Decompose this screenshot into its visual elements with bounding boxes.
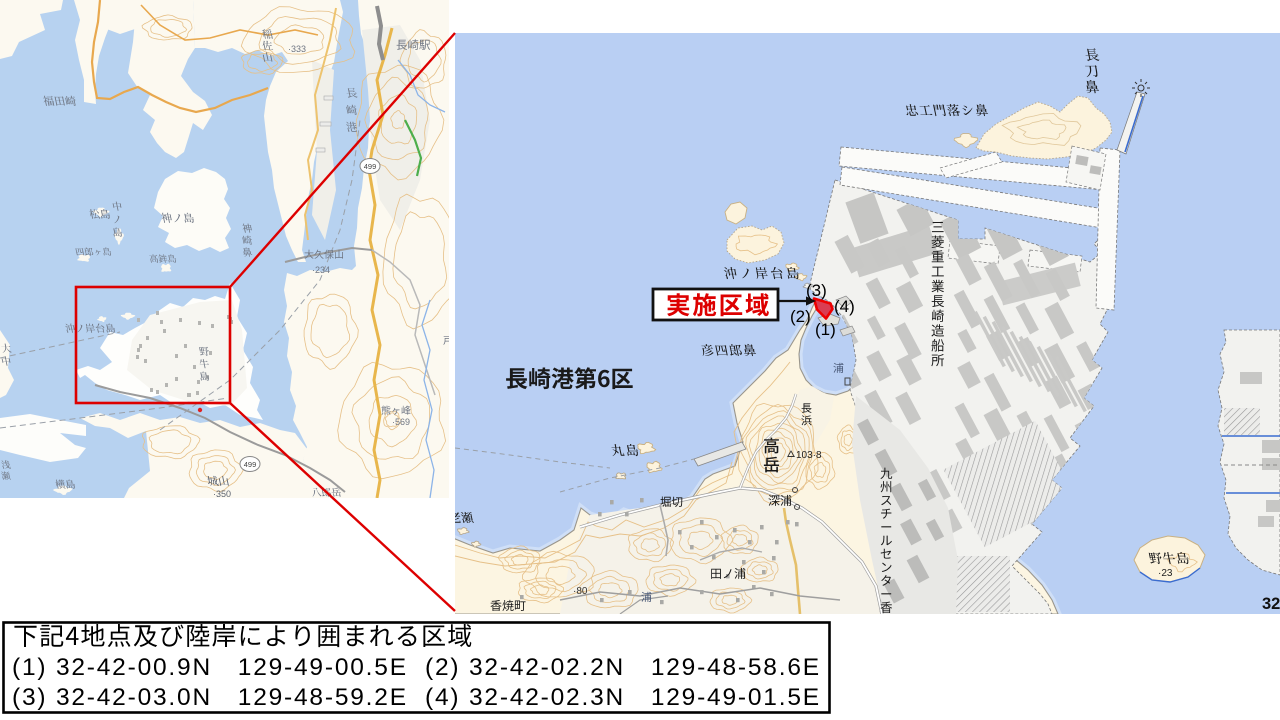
svg-text:·23: ·23: [1158, 568, 1173, 579]
svg-text:499: 499: [364, 162, 377, 171]
svg-text:(4): (4): [834, 297, 855, 316]
svg-text:32: 32: [1262, 595, 1280, 613]
svg-text:103·8: 103·8: [796, 450, 822, 461]
svg-text:(3) 32-42-03.0N 129-48-59.2E: (3) 32-42-03.0N 129-48-59.2E (4) 32-42-0…: [12, 684, 821, 711]
svg-text:·234: ·234: [312, 265, 330, 275]
svg-text:(2): (2): [790, 307, 811, 326]
svg-text:499: 499: [244, 460, 257, 469]
svg-text:(3): (3): [806, 281, 827, 300]
svg-text:·569: ·569: [392, 417, 410, 427]
svg-text:(1) 32-42-00.9N 129-49-00.5E: (1) 32-42-00.9N 129-49-00.5E (2) 32-42-0…: [12, 654, 821, 681]
svg-text:(1): (1): [815, 320, 836, 339]
svg-text:·333: ·333: [288, 44, 306, 54]
svg-text:·350: ·350: [213, 489, 231, 499]
svg-text:·80: ·80: [573, 586, 588, 597]
